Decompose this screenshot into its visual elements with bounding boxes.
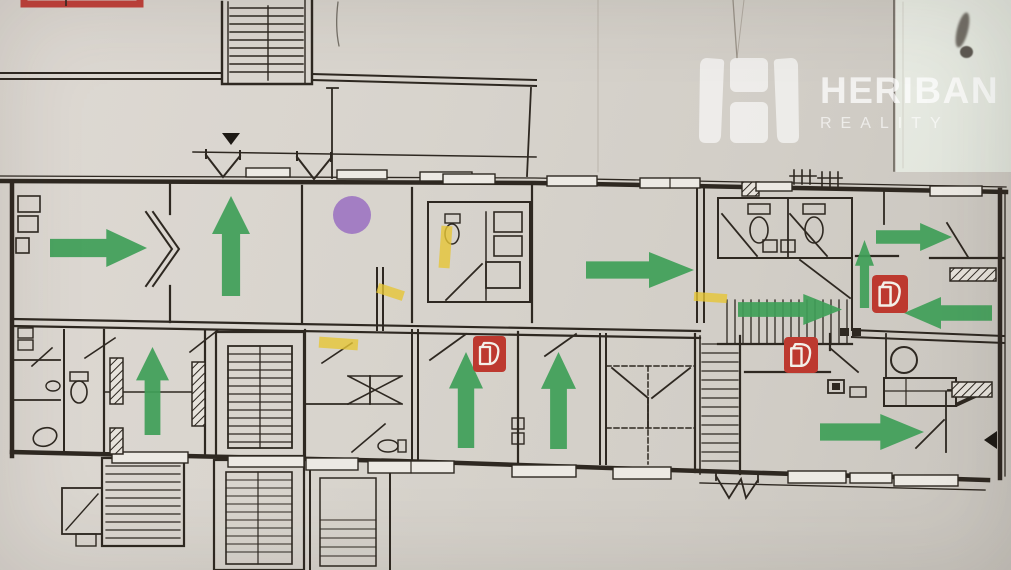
escape-arrow	[212, 196, 250, 296]
escape-arrow	[586, 252, 694, 288]
escape-arrow	[904, 297, 992, 329]
highlighter-mark	[376, 283, 405, 301]
legend-frame	[24, 0, 140, 6]
paper-creases	[337, 0, 903, 172]
assembly-point-marker	[333, 196, 371, 234]
staircases	[62, 0, 850, 570]
escape-arrow	[876, 223, 952, 251]
doors	[32, 212, 968, 452]
escape-arrow	[136, 347, 169, 435]
escape-arrow	[738, 294, 842, 325]
direction-triangle	[984, 431, 997, 449]
escape-arrow	[820, 414, 924, 450]
fire-extinguisher-icon	[784, 337, 818, 373]
escape-arrow	[855, 240, 874, 308]
escape-arrow	[541, 352, 576, 449]
fire-extinguisher-icon	[872, 275, 908, 313]
evacuation-floorplan	[0, 0, 1011, 570]
highlighter-mark	[319, 337, 359, 351]
escape-arrow	[50, 229, 147, 267]
fire-extinguisher-icon	[473, 336, 506, 372]
highlighter-mark	[439, 226, 453, 269]
evacuation-plan-photo: HERIBAN REALITY	[0, 0, 1011, 570]
direction-triangle	[222, 133, 240, 145]
highlighter-mark	[694, 292, 728, 303]
